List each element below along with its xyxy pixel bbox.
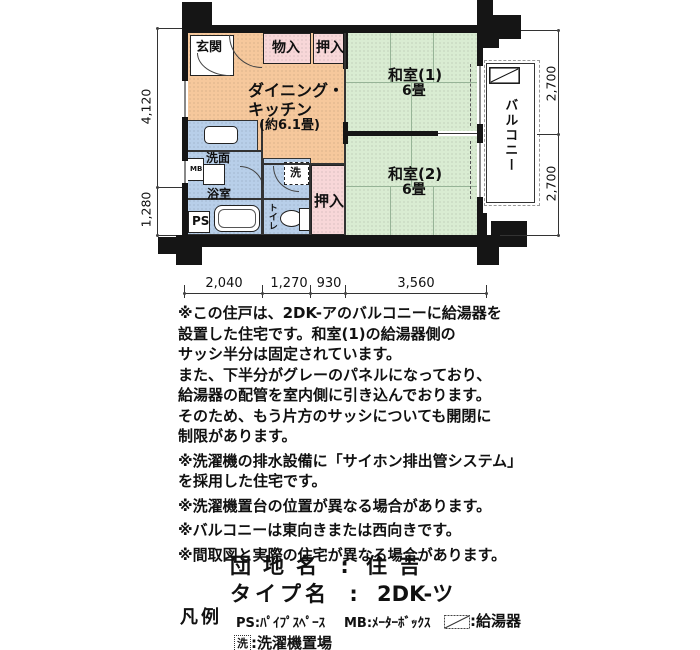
type-name-row: タイプ名 : 2DK-ツ	[230, 578, 453, 608]
balcony-wall	[477, 125, 483, 142]
notes-block: ※この住戸は、2DK-アのバルコニーに給湯器を設置した住宅です。和室(1)の給湯…	[178, 303, 550, 569]
bathroom-label: 浴室	[207, 188, 231, 201]
column	[491, 221, 527, 247]
danchi-name-row: 団地名 : 住吉	[230, 550, 432, 580]
outer-wall-top	[182, 25, 486, 33]
dk-size-label: (約6.1畳)	[259, 119, 320, 133]
entrance-label: 玄関	[196, 41, 222, 55]
note-line: ※バルコニーは東向きまたは西向きです。	[194, 520, 550, 541]
note-line: また、下半分がグレーのパネルになっており、	[194, 365, 550, 386]
column	[477, 15, 521, 39]
outer-wall-left	[182, 184, 188, 235]
dimension-left-bottom: 1,280	[139, 188, 154, 232]
note-line: を採用した住宅です。	[194, 471, 550, 492]
wall	[261, 120, 263, 235]
washer-label: 洗	[290, 167, 301, 179]
column	[176, 247, 202, 265]
note-paragraph-3: ※洗濯機置台の位置が異なる場合があります。	[178, 496, 550, 517]
dimension-line	[184, 293, 487, 294]
legend-heading: 凡例	[180, 608, 222, 628]
balcony-wall	[477, 198, 483, 235]
toilet-label: トイレ	[266, 203, 276, 230]
danchi-name-label: 団地名	[230, 554, 329, 578]
note-line: ※洗濯機の排水設備に「サイホン排出管システム」	[194, 451, 550, 472]
type-name-separator: :	[349, 582, 357, 606]
wall	[261, 163, 346, 165]
note-line: 給湯器の配管を室内側に引き込んでおります。	[194, 385, 550, 406]
dimension-tick	[485, 292, 488, 295]
washitsu1-label: 和室(1)	[388, 67, 442, 84]
dimension-tick	[557, 133, 560, 136]
dimension-bottom-1: 2,040	[194, 276, 254, 291]
dk-label-1: ダイニング・	[248, 82, 344, 100]
tatami-line	[390, 186, 391, 235]
note-paragraph-1: ※この住戸は、2DK-アのバルコニーに給湯器を設置した住宅です。和室(1)の給湯…	[178, 303, 550, 447]
dimension-tick	[261, 292, 264, 295]
washroom-label: 洗面	[206, 152, 230, 165]
dimension-right-bottom: 2,700	[544, 162, 559, 206]
column	[182, 2, 212, 25]
window	[182, 160, 188, 184]
dimension-tick	[183, 292, 186, 295]
balcony-wall	[477, 33, 483, 65]
water-heater-icon	[489, 67, 520, 84]
note-paragraph-4: ※バルコニーは東向きまたは西向きです。	[178, 520, 550, 541]
sash-line	[470, 64, 471, 126]
legend-ps: PS:ﾊﾟｲﾌﾟｽﾍﾟｰｽ	[236, 612, 325, 631]
bathtub	[214, 205, 260, 232]
washbasin	[203, 164, 225, 185]
oshiire-top-label: 押入	[316, 41, 344, 56]
legend-washer-label: :洗濯機置場	[251, 634, 332, 650]
dimension-tick	[156, 27, 159, 30]
note-line: 設置した住宅です。和室(1)の給湯器側の	[194, 324, 550, 345]
wall	[309, 163, 311, 235]
balcony-window	[477, 142, 483, 198]
tatami-line	[433, 186, 434, 235]
dimension-tick	[557, 29, 560, 32]
washer-legend-icon: 洗	[234, 635, 251, 650]
kitchen-sink	[204, 126, 238, 144]
dimension-right-top: 2,700	[544, 62, 559, 106]
legend-heater: :給湯器	[444, 610, 521, 631]
mb-label: MB	[190, 166, 202, 174]
dk-label-2: キッチン	[248, 101, 312, 119]
ps-label: PS	[192, 215, 209, 228]
note-line: ※この住戸は、2DK-アのバルコニーに給湯器を	[194, 303, 550, 324]
note-line: 制限があります。	[194, 426, 550, 447]
dimension-bottom-3: 930	[299, 276, 359, 291]
mono-ire-label: 物入	[272, 41, 300, 56]
window	[182, 80, 188, 118]
dimension-tick	[156, 234, 159, 237]
wall	[438, 133, 477, 134]
type-name-label: タイプ名	[230, 582, 330, 606]
legend-heater-label: :給湯器	[470, 612, 521, 630]
dimension-tick	[344, 292, 347, 295]
legend-mb: MB:ﾒｰﾀｰﾎﾞｯｸｽ	[344, 612, 431, 631]
dimension-line	[521, 30, 559, 31]
dimension-tick	[557, 234, 560, 237]
water-heater-legend-icon	[444, 615, 470, 629]
dimension-tick	[156, 186, 159, 189]
note-line: ※洗濯機置台の位置が異なる場合があります。	[194, 496, 550, 517]
column	[477, 0, 493, 15]
washitsu2-size: 6畳	[402, 183, 426, 198]
dimension-bottom-4: 3,560	[386, 276, 446, 291]
dimension-line	[500, 235, 559, 236]
legend-washer: 洗:洗濯機置場	[234, 632, 332, 650]
type-name-value: 2DK-ツ	[377, 582, 453, 606]
danchi-name-separator: :	[340, 554, 348, 578]
washitsu1-size: 6畳	[402, 84, 426, 99]
dimension-line	[157, 28, 158, 235]
dimension-line	[158, 187, 182, 188]
dimension-line	[158, 235, 176, 236]
dimension-line	[158, 28, 182, 29]
washitsu2-label: 和室(2)	[388, 166, 442, 183]
floor-plan-page: 玄関 物入 押入 ダイニング・ キッチン (約6.1畳) 和室(1) 6畳 和室…	[0, 0, 700, 650]
note-paragraph-2: ※洗濯機の排水設備に「サイホン排出管システム」を採用した住宅です。	[178, 451, 550, 492]
note-line: そのため、もう片方のサッシについても開閉に	[194, 406, 550, 427]
outer-wall-left	[182, 118, 188, 160]
balcony-window	[477, 65, 483, 125]
dimension-tick	[309, 292, 312, 295]
outer-wall-bottom	[176, 235, 487, 247]
outer-wall-left	[182, 25, 188, 80]
balcony-label: バルコニー	[502, 98, 516, 173]
oshiire-bottom-label: 押入	[314, 193, 344, 210]
dimension-left-top: 4,120	[139, 85, 154, 129]
wall	[346, 131, 438, 136]
note-line: サッシ半分は固定されています。	[194, 344, 550, 365]
dimension-line	[537, 134, 559, 135]
danchi-name-value: 住吉	[366, 554, 432, 578]
sash-line	[470, 141, 471, 199]
